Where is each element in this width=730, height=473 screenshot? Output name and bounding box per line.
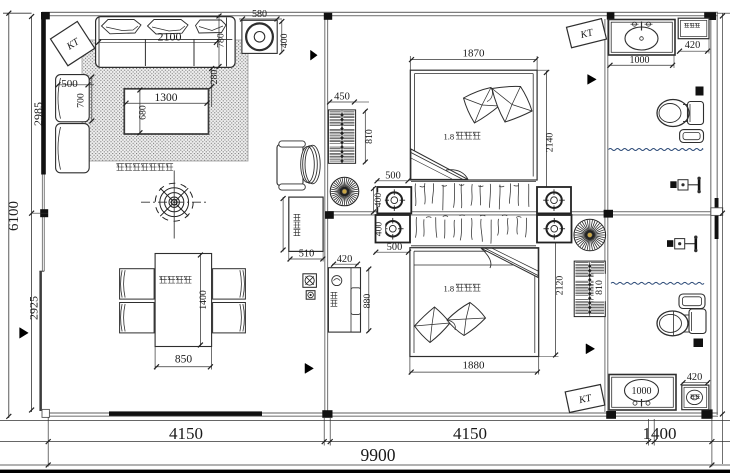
svg-text:2140: 2140 <box>544 133 555 153</box>
svg-text:880: 880 <box>362 294 373 309</box>
svg-text:1000: 1000 <box>632 386 652 397</box>
svg-text:810: 810 <box>594 280 605 295</box>
svg-text:420: 420 <box>685 40 700 51</box>
svg-text:580: 580 <box>252 9 267 20</box>
svg-text:420: 420 <box>687 372 702 383</box>
svg-text:1400: 1400 <box>643 424 677 443</box>
svg-text:680: 680 <box>137 105 148 120</box>
svg-text:1000: 1000 <box>630 55 650 66</box>
svg-text:850: 850 <box>175 354 193 366</box>
svg-text:700: 700 <box>76 93 87 108</box>
svg-text:500: 500 <box>61 78 78 90</box>
svg-text:420: 420 <box>337 254 352 265</box>
svg-text:280: 280 <box>209 70 220 85</box>
svg-text:810: 810 <box>364 129 375 144</box>
svg-text:400: 400 <box>279 33 290 48</box>
svg-text:4150: 4150 <box>453 424 487 443</box>
svg-text:500: 500 <box>385 171 400 182</box>
svg-text:1870: 1870 <box>463 47 486 59</box>
svg-text:1.8: 1.8 <box>444 284 455 294</box>
svg-text:1300: 1300 <box>155 92 178 104</box>
svg-text:6100: 6100 <box>6 201 22 231</box>
svg-text:450: 450 <box>334 92 350 103</box>
svg-text:4150: 4150 <box>169 424 203 443</box>
svg-text:1880: 1880 <box>463 360 486 372</box>
svg-text:1400: 1400 <box>198 290 209 310</box>
svg-text:780: 780 <box>216 33 227 48</box>
svg-text:2985: 2985 <box>31 102 45 126</box>
svg-text:510: 510 <box>299 248 314 259</box>
svg-text:400: 400 <box>374 222 385 237</box>
svg-text:500: 500 <box>387 242 402 253</box>
svg-text:2120: 2120 <box>554 276 565 296</box>
svg-text:2100: 2100 <box>158 29 182 43</box>
svg-text:9900: 9900 <box>361 445 396 465</box>
svg-text:1.8: 1.8 <box>444 132 455 142</box>
svg-text:400: 400 <box>373 193 384 208</box>
svg-text:2925: 2925 <box>27 296 41 320</box>
